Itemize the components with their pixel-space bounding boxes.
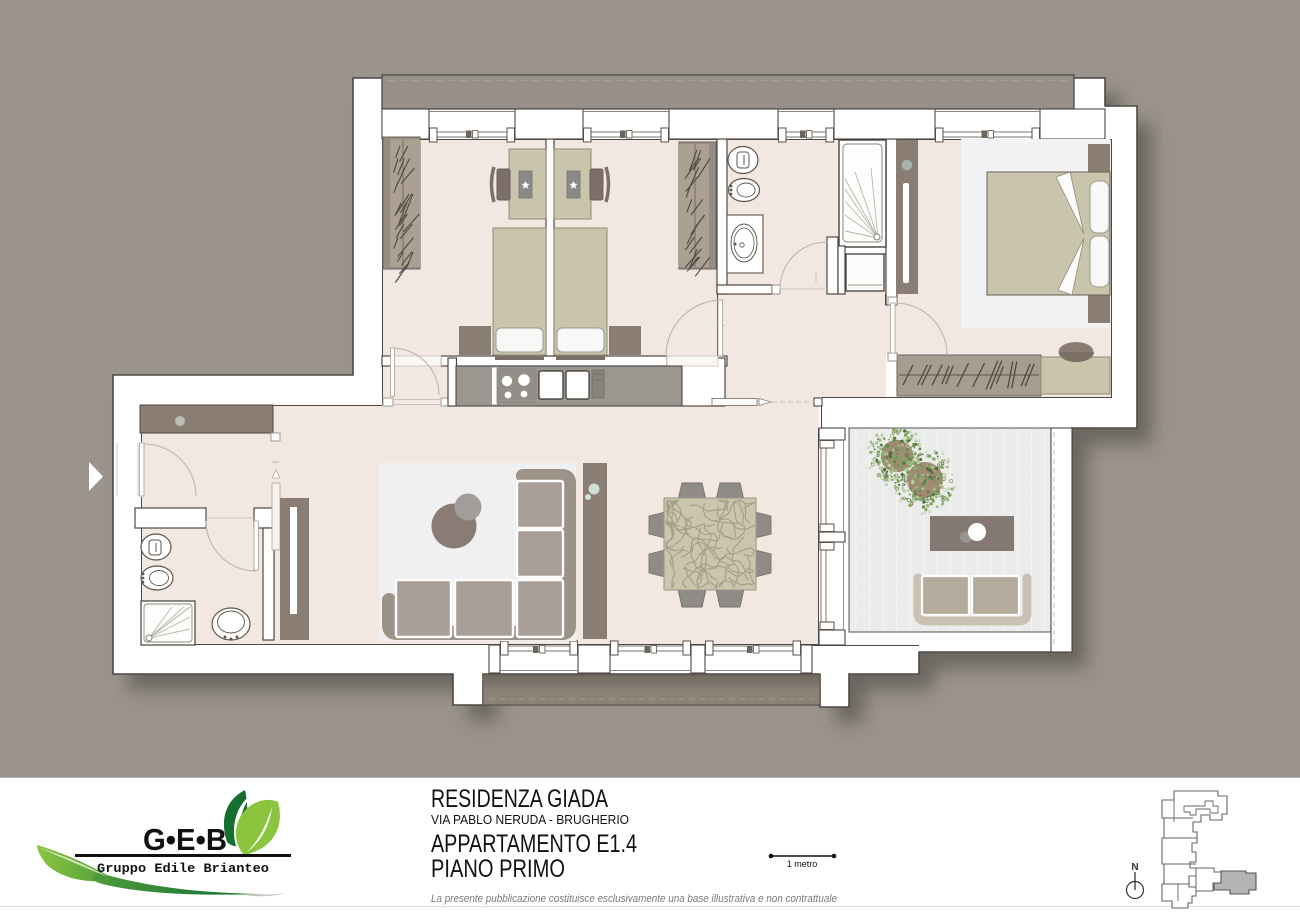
svg-text:N: N (1131, 862, 1138, 873)
svg-text:VIA PABLO NERUDA - BRUGHERIO: VIA PABLO NERUDA - BRUGHERIO (431, 812, 629, 827)
svg-text:PIANO PRIMO: PIANO PRIMO (431, 855, 565, 883)
svg-text:G•E•B: G•E•B (143, 822, 227, 857)
svg-text:APPARTAMENTO E1.4: APPARTAMENTO E1.4 (431, 830, 637, 858)
svg-text:La presente pubblicazione cost: La presente pubblicazione costituisce es… (431, 893, 837, 905)
svg-text:Gruppo Edile Brianteo: Gruppo Edile Brianteo (97, 861, 269, 876)
svg-text:RESIDENZA GIADA: RESIDENZA GIADA (431, 785, 608, 813)
svg-text:1 metro: 1 metro (787, 859, 818, 869)
